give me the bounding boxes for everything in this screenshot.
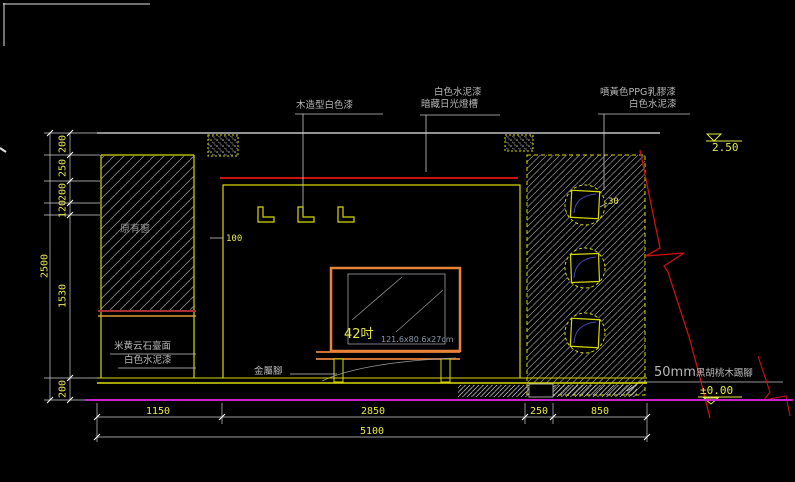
dim-h-total-5100: 5100 (360, 426, 384, 437)
dim-h-2850: 2850 (361, 406, 385, 417)
note-wood-trim: 木造型白色漆 (296, 101, 353, 111)
hook-brackets (258, 207, 354, 222)
note-skirting: 50mm黑胡桃木踢腳 (654, 366, 753, 380)
note-ppg-paint: 噴黃色PPG乳膠漆 (600, 88, 676, 98)
dim-h-850: 850 (591, 406, 609, 417)
dim-h-1150: 1150 (146, 406, 170, 417)
dim-v-200c: 200 (58, 380, 69, 398)
dim-recess-100: 100 (226, 235, 242, 245)
beam-section-blocks (208, 135, 533, 156)
note-marble-top: 米黄云石臺面 (114, 342, 171, 352)
note-metal-feet: 金屬腳 (254, 367, 283, 377)
tv-size-label: 42吋 (344, 328, 374, 342)
base-platform (85, 378, 793, 400)
dim-niche-30: 30 (608, 198, 619, 208)
level-floor-value: ±0.00 (700, 385, 733, 397)
note-cement-paint-left: 白色水泥漆 (124, 356, 172, 366)
note-hidden-light: 暗藏日光燈槽 (421, 100, 478, 110)
cad-drawing-canvas: 木造型白色漆 白色水泥漆 暗藏日光燈槽 噴黃色PPG乳膠漆 白色水泥漆 原有窗 … (0, 0, 795, 482)
note-cement-paint-top: 白色水泥漆 (434, 88, 482, 98)
level-markers (698, 134, 742, 404)
frame-corner-marks (0, 3, 150, 152)
note-cement-paint-right: 白色水泥漆 (629, 100, 677, 110)
dim-v-200b: 200 (58, 183, 69, 201)
right-display-panel (527, 155, 645, 395)
dim-v-250: 250 (58, 159, 69, 177)
dim-v-120: 120 (58, 200, 69, 218)
elevation-linework (0, 0, 795, 482)
niche-squares (570, 190, 599, 347)
skirting-material-label: 黑胡桃木踢腳 (696, 368, 753, 379)
dim-v-200a: 200 (58, 135, 69, 153)
dim-v-total-2500: 2500 (40, 254, 51, 278)
left-dimension-chain (44, 130, 100, 403)
level-top-value: 2.50 (712, 142, 739, 154)
tv-spec-label: 121.6x80.6x27cm (381, 336, 454, 345)
skirting-size-label: 50mm (654, 365, 696, 380)
dim-h-250: 250 (530, 406, 548, 417)
note-existing-window: 原有窗 (120, 224, 150, 235)
dim-v-1530: 1530 (58, 284, 69, 308)
